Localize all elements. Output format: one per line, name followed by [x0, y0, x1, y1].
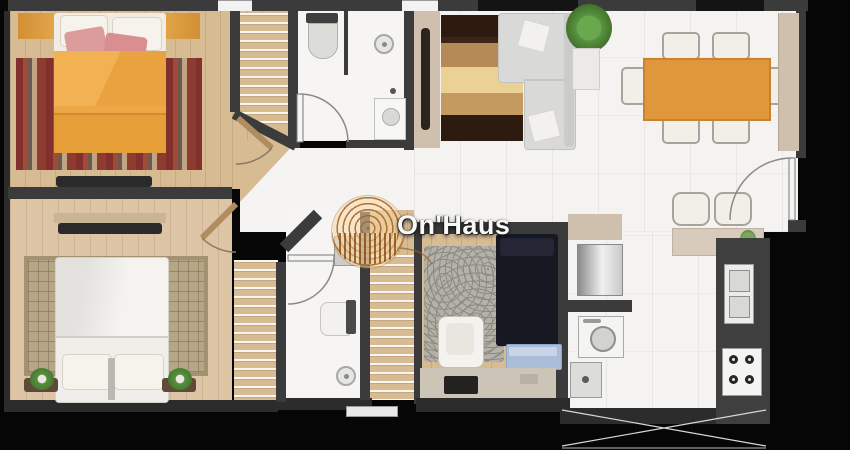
bedroom-2-door-leaf [202, 204, 236, 238]
bathroom-2-door-arc [288, 258, 334, 304]
watermark-brand-text: On'Haus [397, 210, 510, 241]
diagonal-wall-bathroom2 [284, 214, 318, 248]
bathroom-2-door-leaf [288, 255, 334, 261]
floor-plan: On'Haus [0, 0, 850, 450]
entry-door-leaf [789, 158, 795, 220]
bedroom-2-door-arc [202, 238, 236, 252]
watermark-logo-icon [332, 196, 404, 268]
bathroom-1-door-leaf [297, 94, 303, 142]
bathroom-1-door-arc [300, 94, 348, 142]
entry-door-arc [730, 158, 792, 220]
